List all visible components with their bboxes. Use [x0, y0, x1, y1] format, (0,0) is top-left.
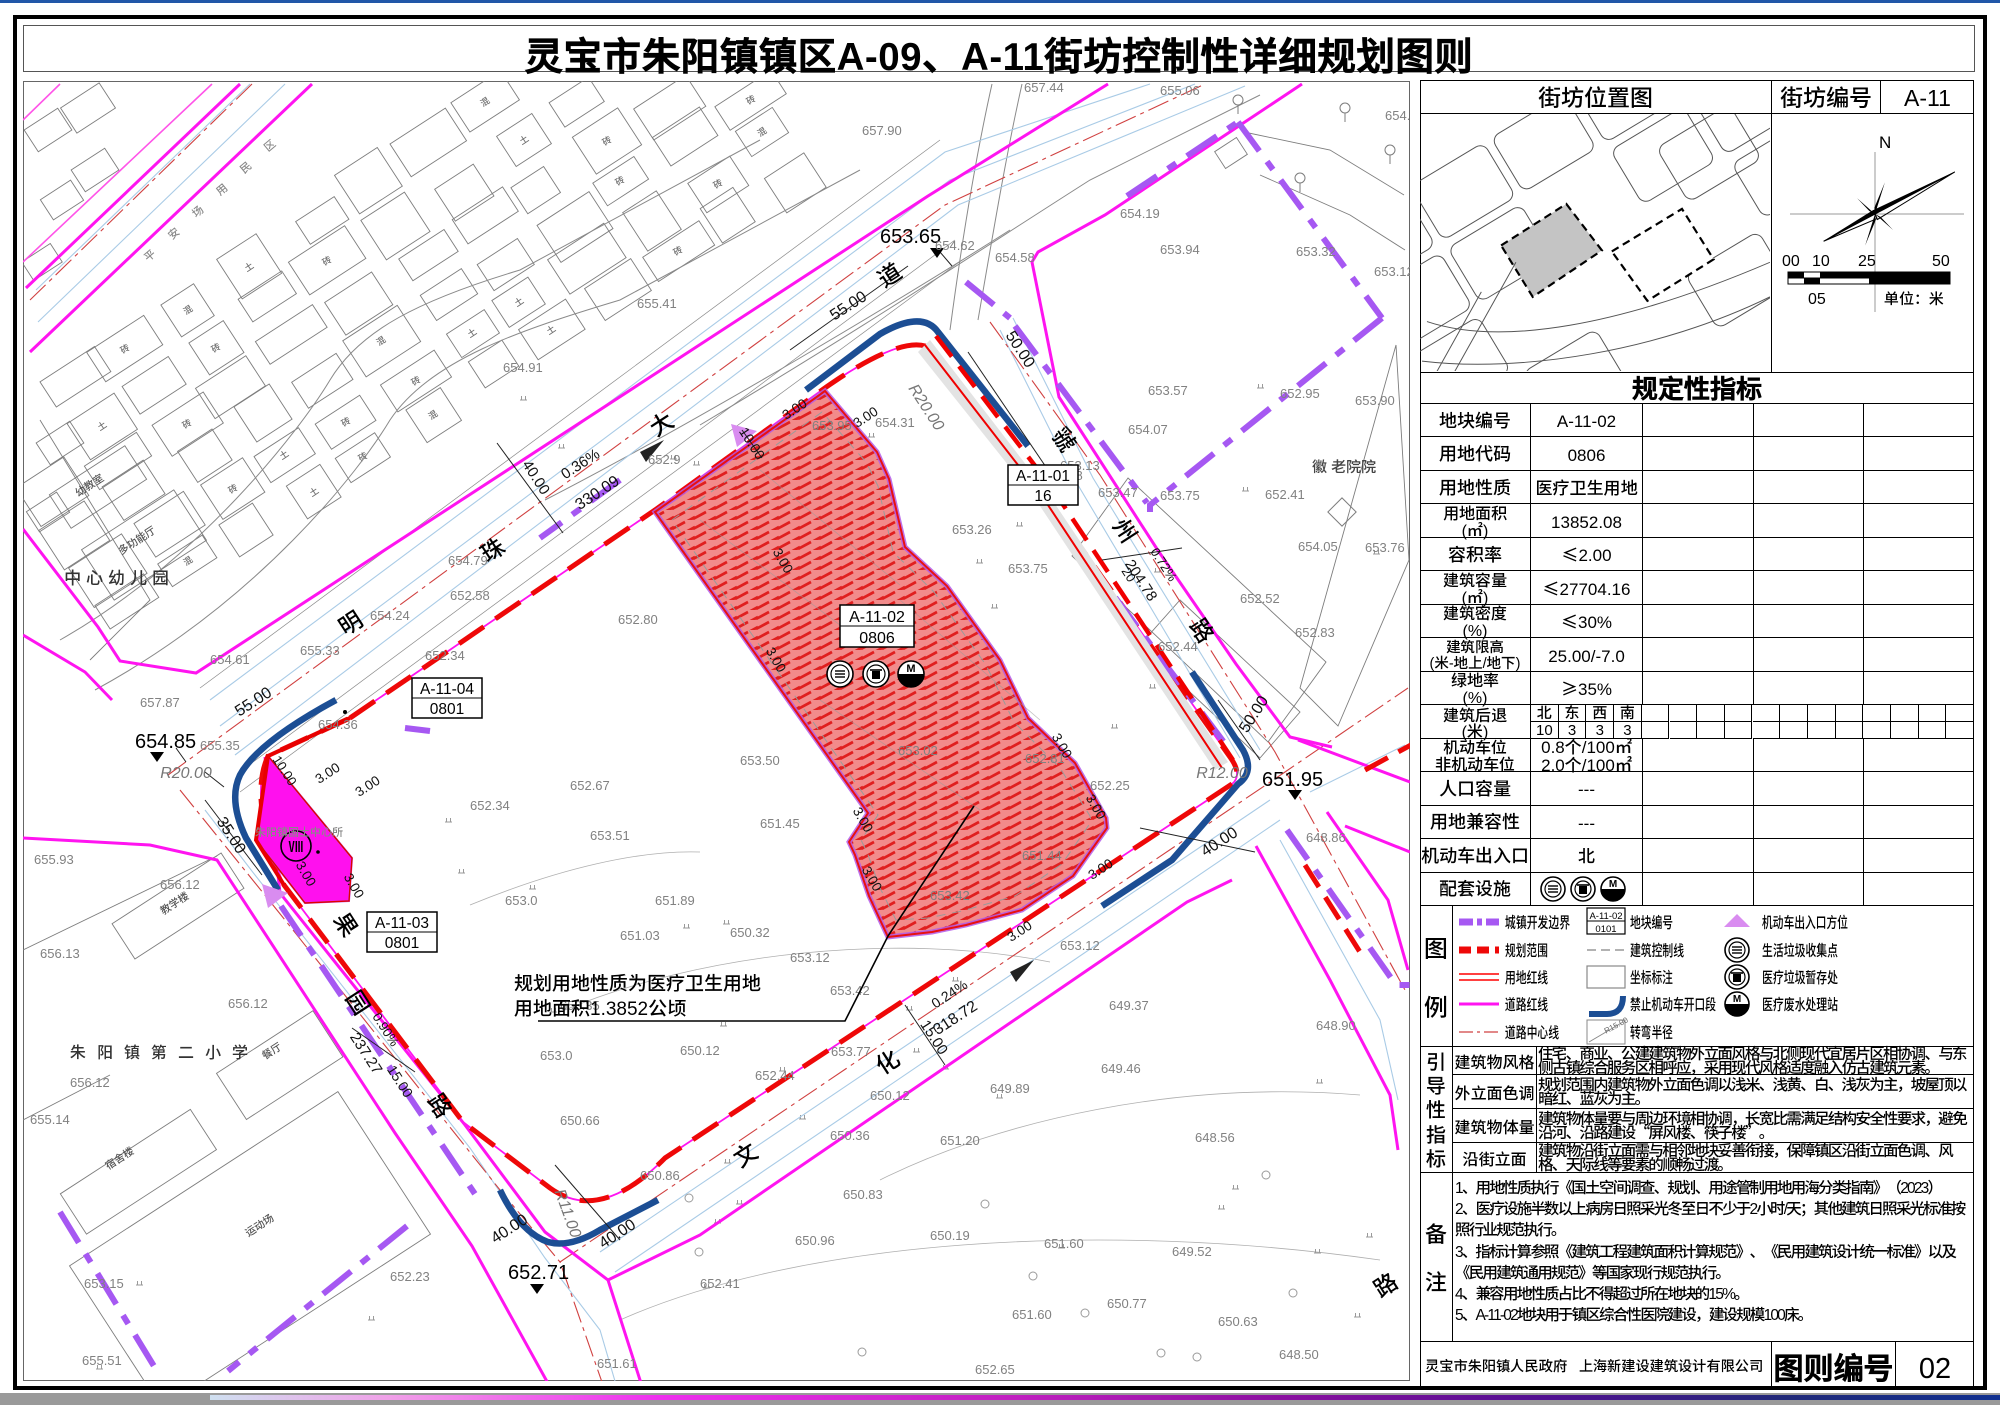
- svg-text:650.96: 650.96: [795, 1230, 835, 1249]
- svg-text:654.62: 654.62: [935, 235, 975, 254]
- svg-text:655.14: 655.14: [30, 1109, 70, 1128]
- svg-text:道路红线: 道路红线: [1505, 993, 1548, 1015]
- svg-text:土: 土: [511, 294, 526, 310]
- svg-text:安: 安: [164, 224, 183, 243]
- svg-text:砖: 砖: [599, 132, 614, 148]
- svg-text:朱阳镇国土中心所: 朱阳镇国土中心所: [255, 824, 343, 840]
- svg-text:规划用地性质为医疗卫生用地: 规划用地性质为医疗卫生用地: [514, 969, 761, 996]
- svg-text:657.90: 657.90: [862, 120, 902, 139]
- svg-text:路: 路: [1366, 1263, 1404, 1304]
- svg-text:653.75: 653.75: [1008, 558, 1048, 577]
- svg-text:土: 土: [276, 447, 291, 463]
- svg-text:转弯半径: 转弯半径: [1630, 1021, 1673, 1043]
- svg-text:654.85: 654.85: [135, 725, 196, 754]
- svg-text:N: N: [1879, 128, 1891, 153]
- svg-text:654.79: 654.79: [448, 550, 488, 569]
- svg-text:652.80: 652.80: [618, 609, 658, 628]
- svg-text:648.50: 648.50: [1279, 1344, 1319, 1363]
- svg-text:652.9: 652.9: [648, 449, 681, 468]
- svg-text:653.42: 653.42: [930, 885, 970, 904]
- svg-text:652.95: 652.95: [1280, 383, 1320, 402]
- svg-text:656.12: 656.12: [160, 874, 200, 893]
- svg-text:653.51: 653.51: [590, 825, 630, 844]
- svg-text:50.00: 50.00: [1231, 690, 1273, 737]
- svg-text:653.12: 653.12: [790, 947, 830, 966]
- svg-text:M: M: [1733, 990, 1741, 1005]
- svg-text:657.87: 657.87: [140, 692, 180, 711]
- svg-text:机动车出入口方位: 机动车出入口方位: [1762, 911, 1848, 933]
- svg-text:中心幼儿园: 中心幼儿园: [64, 564, 174, 589]
- svg-text:规划范围: 规划范围: [1505, 939, 1548, 961]
- svg-text:651.89: 651.89: [655, 890, 695, 909]
- svg-text:R20.00: R20.00: [160, 759, 212, 783]
- svg-text:果: 果: [327, 905, 368, 943]
- svg-text:650.32: 650.32: [730, 922, 770, 941]
- svg-text:650.77: 650.77: [1107, 1293, 1147, 1312]
- svg-text:砖: 砖: [319, 252, 334, 268]
- svg-text:单位：米: 单位：米: [1884, 288, 1944, 309]
- svg-text:民: 民: [236, 158, 255, 177]
- svg-text:砖: 砖: [710, 175, 725, 191]
- svg-text:650.86: 650.86: [640, 1165, 680, 1184]
- svg-text:医疗垃圾暂存处: 医疗垃圾暂存处: [1762, 966, 1838, 988]
- svg-text:A-11-03: A-11-03: [375, 911, 429, 933]
- svg-text:652.71: 652.71: [508, 1256, 569, 1285]
- svg-text:653.65: 653.65: [880, 220, 941, 249]
- svg-text:砖: 砖: [670, 242, 685, 258]
- svg-text:建筑控制线: 建筑控制线: [1630, 939, 1684, 961]
- svg-text:40.00: 40.00: [485, 1206, 532, 1248]
- svg-text:用地红线: 用地红线: [1505, 966, 1548, 988]
- svg-text:0101: 0101: [1595, 921, 1616, 935]
- svg-text:655.41: 655.41: [637, 293, 677, 312]
- svg-text:大: 大: [642, 402, 680, 443]
- svg-text:652.67: 652.67: [570, 775, 610, 794]
- svg-text:653.95: 653.95: [812, 415, 852, 434]
- svg-text:650.66: 650.66: [560, 1110, 600, 1129]
- svg-text:A-11-04: A-11-04: [420, 677, 474, 699]
- svg-text:648.86: 648.86: [1306, 827, 1346, 846]
- svg-text:653.57: 653.57: [1148, 380, 1188, 399]
- svg-text:653.90: 653.90: [1355, 390, 1395, 409]
- svg-text:路: 路: [421, 1086, 462, 1124]
- svg-text:混: 混: [425, 407, 440, 423]
- svg-text:648.56: 648.56: [1195, 1127, 1235, 1146]
- svg-text:3.00: 3.00: [350, 769, 383, 800]
- svg-text:653.15: 653.15: [84, 1273, 124, 1292]
- svg-text:653.94: 653.94: [1160, 239, 1200, 258]
- svg-text:650.12: 650.12: [870, 1085, 910, 1104]
- svg-text:653.76: 653.76: [1365, 537, 1405, 556]
- svg-text:场: 场: [188, 202, 207, 221]
- svg-text:3.00: 3.00: [310, 756, 343, 787]
- svg-text:655.93: 655.93: [34, 849, 74, 868]
- svg-text:653.0: 653.0: [540, 1045, 573, 1064]
- svg-text:654.61: 654.61: [210, 649, 250, 668]
- svg-text:道路中心线: 道路中心线: [1505, 1021, 1559, 1043]
- svg-text:混: 混: [373, 333, 388, 349]
- svg-text:0801: 0801: [430, 697, 464, 719]
- svg-text:652.83: 652.83: [1295, 622, 1335, 641]
- svg-text:砖: 砖: [117, 340, 132, 356]
- svg-text:徽 老院院: 徽 老院院: [1312, 456, 1376, 477]
- svg-text:砖: 砖: [338, 413, 353, 429]
- svg-text:653.32: 653.32: [1296, 241, 1336, 260]
- svg-text:明: 明: [331, 601, 369, 642]
- svg-text:医疗废水处理站: 医疗废水处理站: [1762, 993, 1838, 1015]
- svg-text:652.34: 652.34: [425, 645, 465, 664]
- svg-text:650.36: 650.36: [830, 1125, 870, 1144]
- svg-text:A-11-02: A-11-02: [1589, 908, 1622, 922]
- svg-text:650.83: 650.83: [843, 1184, 883, 1203]
- svg-text:区: 区: [260, 136, 279, 155]
- svg-text:M: M: [906, 660, 915, 676]
- svg-text:R11.00: R11.00: [550, 1185, 590, 1241]
- svg-text:地块编号: 地块编号: [1630, 911, 1673, 933]
- svg-text:649.37: 649.37: [1109, 995, 1149, 1014]
- svg-text:654.31: 654.31: [875, 412, 915, 431]
- svg-text:654.58: 654.58: [995, 247, 1035, 266]
- svg-text:生活垃圾收集点: 生活垃圾收集点: [1762, 939, 1838, 961]
- svg-text:654.36: 654.36: [318, 714, 358, 733]
- svg-text:化: 化: [868, 1040, 906, 1081]
- svg-text:0806: 0806: [859, 624, 895, 648]
- svg-text:648.90: 648.90: [1316, 1015, 1356, 1034]
- svg-text:混: 混: [180, 302, 195, 318]
- svg-text:652.65: 652.65: [975, 1359, 1015, 1378]
- svg-text:654.05: 654.05: [1298, 536, 1338, 555]
- svg-text:禁止机动车开口段: 禁止机动车开口段: [1630, 993, 1716, 1015]
- svg-text:宿舍楼: 宿舍楼: [102, 1143, 137, 1173]
- svg-text:砖: 砖: [743, 91, 758, 107]
- svg-text:651.95: 651.95: [1262, 763, 1323, 792]
- svg-text:652.44: 652.44: [1158, 636, 1198, 655]
- svg-text:653.12: 653.12: [1060, 935, 1100, 954]
- svg-text:土: 土: [94, 418, 109, 434]
- svg-text:16: 16: [1034, 484, 1051, 506]
- svg-text:651.61: 651.61: [597, 1353, 637, 1372]
- svg-text:653.75: 653.75: [1160, 485, 1200, 504]
- svg-text:649.46: 649.46: [1101, 1058, 1141, 1077]
- svg-text:砖: 砖: [225, 480, 240, 496]
- svg-text:砖: 砖: [612, 172, 627, 188]
- svg-text:654.12: 654.12: [1385, 105, 1410, 124]
- svg-text:649.89: 649.89: [990, 1078, 1030, 1097]
- svg-text:655.35: 655.35: [200, 735, 240, 754]
- svg-text:653.77: 653.77: [831, 1041, 871, 1060]
- svg-text:混: 混: [477, 94, 492, 110]
- svg-text:A-11-01: A-11-01: [1016, 464, 1070, 486]
- svg-text:文: 文: [726, 1133, 764, 1174]
- svg-text:05: 05: [1808, 285, 1826, 309]
- svg-text:651.60: 651.60: [1044, 1233, 1084, 1252]
- svg-text:654.07: 654.07: [1128, 419, 1168, 438]
- svg-text:656.12: 656.12: [70, 1072, 110, 1091]
- svg-text:城镇开发边界: 城镇开发边界: [1505, 911, 1570, 933]
- svg-text:坐标标注: 坐标标注: [1630, 966, 1673, 988]
- svg-text:朱阳镇第二小学: 朱阳镇第二小学: [70, 1039, 259, 1063]
- svg-text:0801: 0801: [385, 931, 419, 953]
- svg-text:652.58: 652.58: [450, 585, 490, 604]
- svg-text:652.41: 652.41: [700, 1273, 740, 1292]
- svg-text:651.60: 651.60: [1012, 1304, 1052, 1323]
- svg-text:653.26: 653.26: [952, 519, 992, 538]
- svg-text:40.00: 40.00: [518, 456, 556, 499]
- svg-text:652.25: 652.25: [1090, 775, 1130, 794]
- svg-text:混: 混: [754, 124, 769, 140]
- svg-text:652.41: 652.41: [1265, 484, 1305, 503]
- svg-text:650.63: 650.63: [1218, 1311, 1258, 1330]
- svg-text:650.19: 650.19: [930, 1225, 970, 1244]
- svg-text:652.81: 652.81: [1025, 748, 1065, 767]
- svg-text:655.51: 655.51: [82, 1350, 122, 1369]
- svg-text:651.03: 651.03: [620, 925, 660, 944]
- svg-text:657.44: 657.44: [1024, 81, 1064, 96]
- svg-text:656.13: 656.13: [40, 943, 80, 962]
- svg-text:运动场: 运动场: [242, 1211, 277, 1241]
- svg-text:道: 道: [870, 253, 908, 294]
- svg-text:混: 混: [180, 553, 195, 569]
- svg-text:655.33: 655.33: [300, 640, 340, 659]
- svg-text:R12.00: R12.00: [1196, 759, 1248, 783]
- svg-text:R15.00: R15.00: [1602, 1014, 1630, 1036]
- svg-text:651.45: 651.45: [760, 813, 800, 832]
- svg-text:652.34: 652.34: [470, 795, 510, 814]
- svg-text:653.50: 653.50: [740, 750, 780, 769]
- svg-text:651.44: 651.44: [1022, 845, 1062, 864]
- svg-text:655.06: 655.06: [1160, 81, 1200, 99]
- svg-text:土: 土: [516, 132, 531, 148]
- svg-text:652.23: 652.23: [390, 1266, 430, 1285]
- svg-text:656.12: 656.12: [228, 993, 268, 1012]
- svg-text:652.44: 652.44: [755, 1065, 795, 1084]
- svg-text:10: 10: [1812, 247, 1830, 271]
- svg-text:用: 用: [212, 180, 231, 199]
- svg-text:土: 土: [464, 325, 479, 341]
- svg-text:平: 平: [140, 246, 159, 265]
- svg-text:654.91: 654.91: [503, 357, 543, 376]
- svg-text:649.52: 649.52: [1172, 1241, 1212, 1260]
- svg-text:653.02: 653.02: [898, 740, 938, 759]
- svg-text:土: 土: [241, 259, 256, 275]
- svg-text:653.0: 653.0: [505, 890, 538, 909]
- svg-text:653.12: 653.12: [1374, 261, 1410, 280]
- svg-text:用地面积1.3852公顷: 用地面积1.3852公顷: [514, 994, 686, 1021]
- svg-text:652.52: 652.52: [1240, 588, 1280, 607]
- svg-text:654.19: 654.19: [1120, 203, 1160, 222]
- svg-text:651.20: 651.20: [940, 1130, 980, 1149]
- svg-text:25: 25: [1858, 247, 1876, 271]
- svg-text:M: M: [1609, 875, 1617, 890]
- svg-text:土: 土: [306, 484, 321, 500]
- svg-text:654.24: 654.24: [370, 605, 410, 624]
- svg-text:00: 00: [1782, 247, 1800, 271]
- svg-text:砖: 砖: [208, 339, 223, 355]
- svg-text:50: 50: [1932, 247, 1950, 271]
- svg-text:砖: 砖: [179, 415, 194, 431]
- svg-text:650.12: 650.12: [680, 1040, 720, 1059]
- svg-text:砖: 砖: [355, 448, 370, 464]
- svg-text:653.47: 653.47: [1098, 482, 1138, 501]
